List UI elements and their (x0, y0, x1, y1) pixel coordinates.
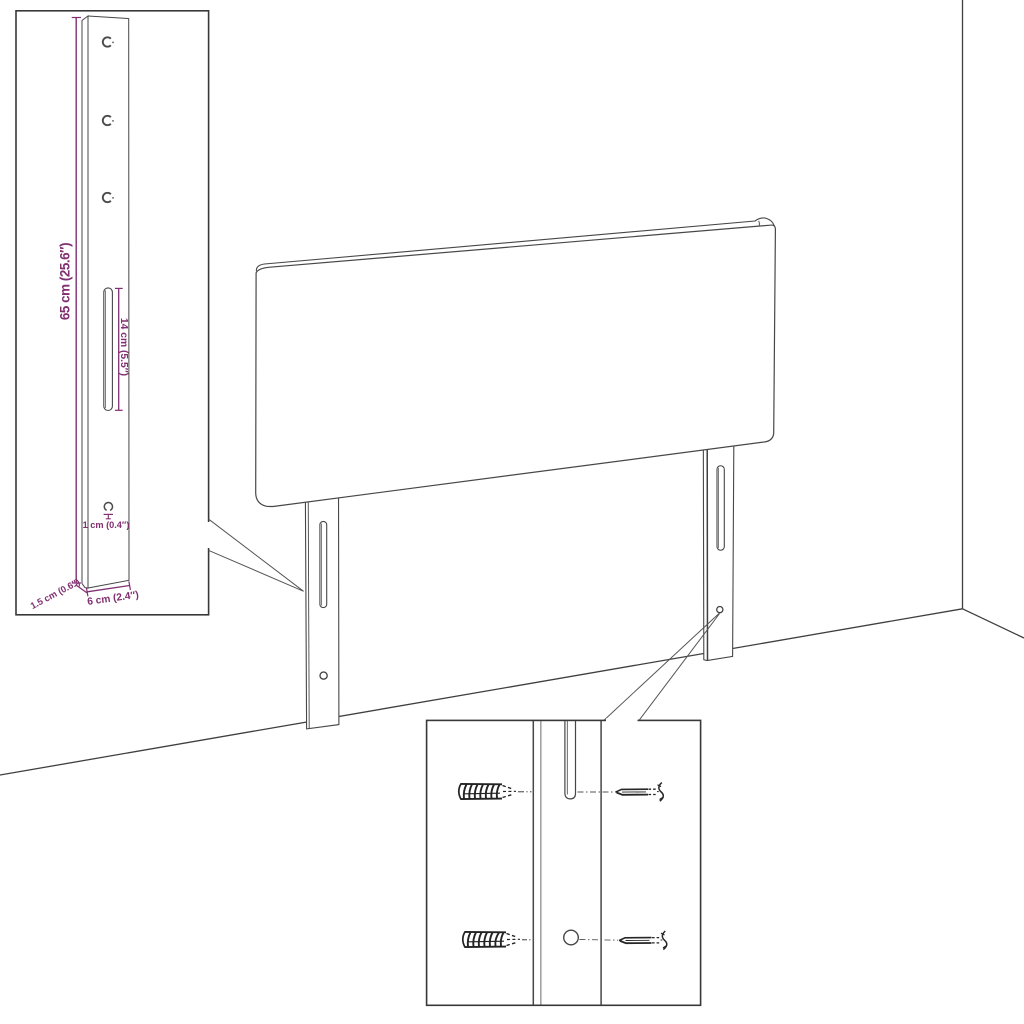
svg-text:1 cm (0.4″): 1 cm (0.4″) (83, 520, 130, 530)
svg-text:14 cm (5.5″): 14 cm (5.5″) (118, 318, 129, 376)
svg-text:65 cm (25.6″): 65 cm (25.6″) (58, 243, 73, 320)
